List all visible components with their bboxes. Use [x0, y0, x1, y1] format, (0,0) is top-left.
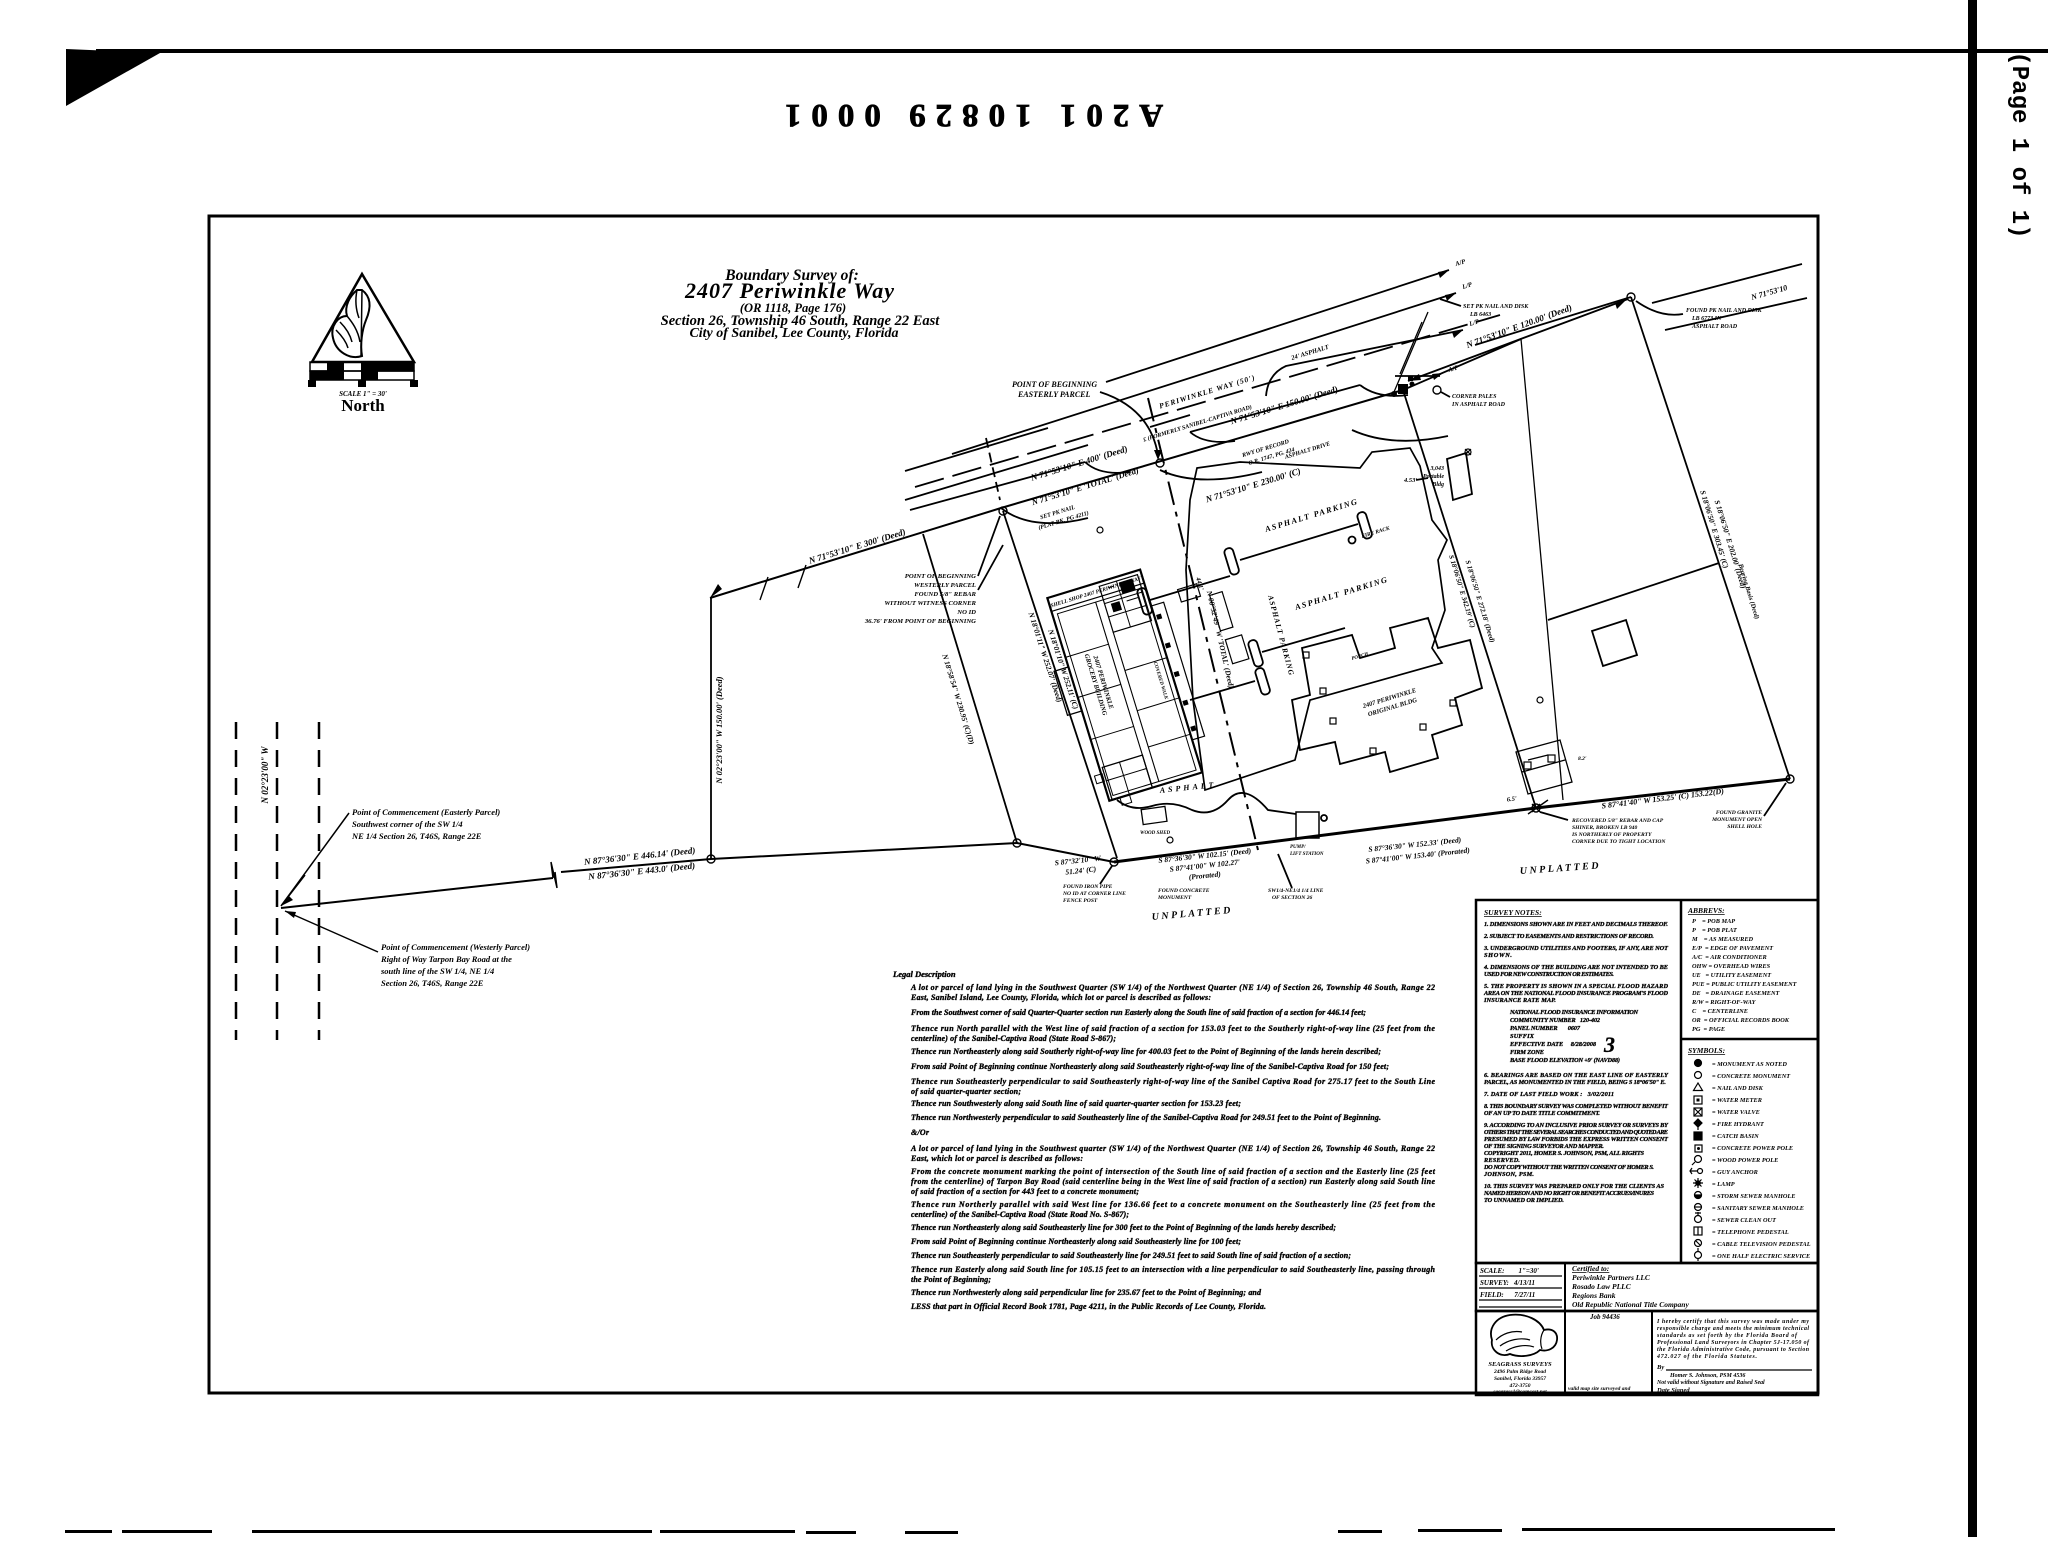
- svg-text:IN ASPHALT ROAD: IN ASPHALT ROAD: [1451, 402, 1506, 408]
- svg-text:7. DATE OF LAST FIELD WORK :: 7. DATE OF LAST FIELD WORK : 3/02/2011: [1484, 1091, 1614, 1098]
- svg-text:NATIONAL FLOOD INSURANCE INFOR: NATIONAL FLOOD INSURANCE INFORMATION: [1509, 1009, 1638, 1016]
- svg-text:COPYRIGHT 2011, HOMER S. JOHNS: COPYRIGHT 2011, HOMER S. JOHNSON, PSM, A…: [1484, 1150, 1644, 1157]
- svg-text:1. DIMENSIONS SHOWN ARE IN FEE: 1. DIMENSIONS SHOWN ARE IN FEET AND DECI…: [1484, 921, 1668, 928]
- svg-text:CORNER PALES: CORNER PALES: [1452, 394, 1497, 400]
- svg-text:OTHERS THAT THE SEVERAL SEARCH: OTHERS THAT THE SEVERAL SEARCHES CONDUCT…: [1484, 1129, 1668, 1136]
- svg-text:472.027 of the Florida Statute: 472.027 of the Florida Statutes.: [1656, 1354, 1757, 1360]
- svg-text:3,043: 3,043: [1430, 466, 1445, 472]
- svg-text:IS NORTHERLY OF PROPERTY: IS NORTHERLY OF PROPERTY: [1571, 832, 1652, 838]
- svg-text:UE = UTILITY EASEMENT: UE = UTILITY EASEMENT: [1692, 972, 1772, 979]
- svg-text:A lot or parcel of land lying: A lot or parcel of land lying in the Sou…: [910, 983, 1435, 992]
- svg-text:centerline) of the Sanibel-Cap: centerline) of the Sanibel-Captiva Road …: [911, 1210, 1129, 1219]
- svg-text:valid map site surveyed and: valid map site surveyed and: [1568, 1386, 1631, 1392]
- svg-text:Thence run Southeasterly perpe: Thence run Southeasterly perpendicular t…: [911, 1077, 1435, 1086]
- svg-text:Thence run Southeasterly perpe: Thence run Southeasterly perpendicular t…: [911, 1251, 1351, 1260]
- svg-text:LB 6463: LB 6463: [1469, 312, 1491, 318]
- svg-text:ASPHALT PARKING: ASPHALT PARKING: [1266, 593, 1297, 677]
- svg-text:POINT OF BEGINNING: POINT OF BEGINNING: [1012, 380, 1097, 389]
- svg-text:2. SUBJECT TO EASEMENTS AND RE: 2. SUBJECT TO EASEMENTS AND RESTRICTIONS…: [1483, 933, 1654, 940]
- svg-text:Bearing Basis (Deed): Bearing Basis (Deed): [1736, 562, 1760, 620]
- svg-text:Periwinkle Partners LLC: Periwinkle Partners LLC: [1572, 1273, 1651, 1282]
- svg-text:= LAMP: = LAMP: [1712, 1181, 1735, 1188]
- svg-text:LIFT STATION: LIFT STATION: [1289, 852, 1324, 857]
- svg-text:FIRM ZONE: FIRM ZONE: [1510, 1049, 1544, 1056]
- svg-text:Certified to:: Certified to:: [1572, 1264, 1609, 1273]
- svg-text:FOUND 5/8" REBAR: FOUND 5/8" REBAR: [914, 591, 976, 598]
- svg-text:FIRE RACK: FIRE RACK: [1361, 526, 1391, 540]
- svg-text:from the centerline) of Tarpon: from the centerline) of Tarpon Bay Road …: [911, 1177, 1435, 1186]
- svg-text:TO UNNAMED OR IMPLIED.: TO UNNAMED OR IMPLIED.: [1484, 1197, 1564, 1204]
- svg-text:SHELL HOLE: SHELL HOLE: [1727, 824, 1762, 830]
- svg-text:ABBREVS:: ABBREVS:: [1687, 906, 1725, 915]
- svg-text:Thence run Easterly along said: Thence run Easterly along said South lin…: [911, 1265, 1436, 1274]
- svg-text:OF SECTION 26: OF SECTION 26: [1272, 895, 1313, 901]
- svg-text:Point of Commencement (Westerl: Point of Commencement (Westerly Parcel): [381, 942, 530, 952]
- svg-text:POINT OF BEGINNING: POINT OF BEGINNING: [905, 573, 976, 580]
- svg-text:SYMBOLS:: SYMBOLS:: [1688, 1046, 1725, 1055]
- svg-text:M = AS MEASURED: M = AS MEASURED: [1691, 936, 1754, 943]
- svg-text:North: North: [341, 396, 385, 415]
- svg-text:ASPHALT ROAD: ASPHALT ROAD: [1691, 324, 1738, 330]
- svg-text:N 71°53'10" E 300' (Deed): N 71°53'10" E 300' (Deed): [807, 527, 907, 566]
- svg-text:10. THIS SURVEY WAS PREPARED O: 10. THIS SURVEY WAS PREPARED ONLY FOR TH…: [1484, 1183, 1664, 1190]
- svg-text:From said Point of Beginning c: From said Point of Beginning continue No…: [910, 1062, 1389, 1071]
- svg-text:Thence run North parallel with: Thence run North parallel with the West …: [911, 1024, 1435, 1033]
- svg-text:= GUY ANCHOR: = GUY ANCHOR: [1712, 1169, 1758, 1176]
- svg-text:3. UNDERGROUND UTILITIES AND F: 3. UNDERGROUND UTILITIES AND FOOTERS, IF…: [1483, 945, 1669, 952]
- svg-text:City of Sanibel, Lee County, F: City of Sanibel, Lee County, Florida: [689, 326, 898, 341]
- svg-text:From the concrete monument mar: From the concrete monument marking the p…: [910, 1167, 1436, 1176]
- svg-text:Not valid without Signature an: Not valid without Signature and Raised S…: [1656, 1380, 1765, 1386]
- svg-text:FOUND PK NAIL AND DISK: FOUND PK NAIL AND DISK: [1686, 308, 1763, 314]
- svg-text:SCALE: 1"=30': SCALE: 1"=30': [1480, 1267, 1539, 1275]
- svg-text:WESTERLY PARCEL: WESTERLY PARCEL: [914, 582, 976, 589]
- svg-text:9. ACCORDING TO AN INCLUSIVE P: 9. ACCORDING TO AN INCLUSIVE PRIOR SURVE…: [1484, 1122, 1669, 1129]
- svg-text:SHOWN.: SHOWN.: [1484, 952, 1512, 959]
- svg-text:DO NOT COPY WITHOUT THE WRITTE: DO NOT COPY WITHOUT THE WRITTEN CONSENT …: [1483, 1164, 1654, 1171]
- svg-text:4.53': 4.53': [1403, 477, 1417, 484]
- svg-text:P = POB PLAT: P = POB PLAT: [1692, 927, 1738, 934]
- svg-text:Professional Land Surveyors in: Professional Land Surveyors in Chapter 5…: [1657, 1340, 1810, 1346]
- svg-text:Job 94436: Job 94436: [1589, 1313, 1620, 1321]
- svg-text:Point of Commencement (Easterl: Point of Commencement (Easterly Parcel): [352, 807, 500, 817]
- svg-text:= STORM SEWER MANHOLE: = STORM SEWER MANHOLE: [1712, 1193, 1795, 1200]
- svg-text:JOHNSON, PSM.: JOHNSON, PSM.: [1483, 1171, 1534, 1178]
- svg-text:6.5': 6.5': [1507, 795, 1518, 803]
- svg-text:OF THE SIGNING SURVEYOR AND MA: OF THE SIGNING SURVEYOR AND MAPPER.: [1484, 1143, 1604, 1150]
- svg-text:RESERVED.: RESERVED.: [1483, 1157, 1520, 1164]
- svg-text:A/C = AIR CONDITIONER: A/C = AIR CONDITIONER: [1691, 954, 1767, 961]
- svg-text:FIELD: 7/27/11: FIELD: 7/27/11: [1480, 1291, 1535, 1299]
- svg-text:FENCE POST: FENCE POST: [1063, 898, 1098, 904]
- svg-text:36.76' FROM POINT OF BEGINNING: 36.76' FROM POINT OF BEGINNING: [864, 618, 976, 625]
- svg-text:From said Point of Beginning c: From said Point of Beginning continue No…: [910, 1237, 1241, 1246]
- svg-text:INSURANCE RATE MAP.: INSURANCE RATE MAP.: [1483, 997, 1556, 1004]
- svg-text:EFFECTIVE DATE 8/28/2008: EFFECTIVE DATE 8/28/2008: [1509, 1041, 1597, 1048]
- svg-text:N 00°52'49" W 'TOTAL' (Deed): N 00°52'49" W 'TOTAL' (Deed): [1205, 589, 1237, 690]
- svg-text:COVERED WALK: COVERED WALK: [1152, 661, 1168, 700]
- svg-text:SHINER, BROKEN LB 940: SHINER, BROKEN LB 940: [1572, 825, 1637, 831]
- svg-text:= SANITARY SEWER MANHOLE: = SANITARY SEWER MANHOLE: [1712, 1205, 1804, 1212]
- svg-text:By: By: [1656, 1364, 1664, 1371]
- svg-text:NE 1/4 Section 26, T46S, Range: NE 1/4 Section 26, T46S, Range 22E: [351, 831, 482, 841]
- svg-text:&/Or: &/Or: [911, 1128, 930, 1137]
- svg-text:24' ASPHALT: 24' ASPHALT: [1290, 344, 1331, 363]
- svg-text:Thence run Northwesterly along: Thence run Northwesterly along said perp…: [911, 1288, 1262, 1297]
- svg-text:PRESUMED BY LAW FORBIDS THE EX: PRESUMED BY LAW FORBIDS THE EXPRESS WRIT…: [1484, 1136, 1669, 1143]
- svg-text:FOUND GRANITE: FOUND GRANITE: [1716, 810, 1762, 816]
- svg-text:Thence run Northeasterly along: Thence run Northeasterly along said Sout…: [911, 1223, 1336, 1232]
- svg-text:8. THIS BOUNDARY SURVEY WAS CO: 8. THIS BOUNDARY SURVEY WAS COMPLETED WI…: [1484, 1103, 1669, 1110]
- svg-text:N 71°53'10" E 150.00' (Deed): N 71°53'10" E 150.00' (Deed): [1228, 384, 1339, 427]
- svg-text:LESS that part in Official Rec: LESS that part in Official Record Book 1…: [910, 1302, 1266, 1311]
- svg-text:SET PK NAIL AND DISK: SET PK NAIL AND DISK: [1463, 304, 1529, 310]
- svg-text:= ONE HALF ELECTRIC SERVICE: = ONE HALF ELECTRIC SERVICE: [1712, 1253, 1810, 1260]
- svg-text:NO ID: NO ID: [956, 609, 976, 616]
- svg-text:standards as set forth by the: standards as set forth by the Florida Bo…: [1656, 1333, 1798, 1339]
- svg-text:6. BEARINGS ARE BASED ON THE E: 6. BEARINGS ARE BASED ON THE EAST LINE O…: [1484, 1072, 1669, 1079]
- svg-text:= TELEPHONE PEDESTAL: = TELEPHONE PEDESTAL: [1712, 1229, 1789, 1236]
- svg-text:OF AN UP TO DATE TITLE COMMITM: OF AN UP TO DATE TITLE COMMITMENT.: [1484, 1110, 1600, 1117]
- svg-text:AREA ON THE NATIONAL FLOOD INS: AREA ON THE NATIONAL FLOOD INSURANCE PRO…: [1483, 990, 1668, 997]
- svg-text:PUE = PUBLIC UTILITY EASEMENT: PUE = PUBLIC UTILITY EASEMENT: [1692, 981, 1798, 988]
- svg-text:From the Southwest corner of s: From the Southwest corner of said Quarte…: [910, 1008, 1366, 1017]
- svg-text:CORNER DUE TO TIGHT LOCATION: CORNER DUE TO TIGHT LOCATION: [1572, 839, 1666, 845]
- svg-text:= WATER METER: = WATER METER: [1712, 1097, 1762, 1104]
- svg-text:Section 26, T46S, Range 22E: Section 26, T46S, Range 22E: [381, 978, 484, 988]
- svg-text:RECOVERED 5/8" REBAR AND CAP: RECOVERED 5/8" REBAR AND CAP: [1571, 818, 1664, 824]
- svg-text:Homer S. Johnson, PSM 4536: Homer S. Johnson, PSM 4536: [1669, 1373, 1745, 1379]
- svg-text:S 87°41'40" W 153.25' (C) 153.: S 87°41'40" W 153.25' (C) 153.22(D): [1601, 787, 1725, 811]
- svg-text:= FIRE HYDRANT: = FIRE HYDRANT: [1712, 1121, 1765, 1128]
- svg-text:of said quarter-quarter sectio: of said quarter-quarter section;: [911, 1087, 1021, 1096]
- svg-text:USED FOR NEW CONSTRUCTION OR E: USED FOR NEW CONSTRUCTION OR ESTIMATES.: [1484, 971, 1614, 978]
- svg-text:A/P: A/P: [1454, 258, 1468, 268]
- svg-text:FOUND CONCRETE: FOUND CONCRETE: [1158, 888, 1210, 894]
- svg-text:MONUMENT: MONUMENT: [1157, 895, 1192, 901]
- svg-text:N 71°53'10: N 71°53'10: [1749, 283, 1788, 302]
- svg-text:Thence run Northeasterly along: Thence run Northeasterly along said Sout…: [911, 1047, 1381, 1056]
- svg-text:ASPHALT PARKING: ASPHALT PARKING: [1293, 575, 1389, 612]
- svg-text:Regions Bank: Regions Bank: [1571, 1291, 1616, 1300]
- svg-text:East, which lot or parcel is d: East, which lot or parcel is described a…: [910, 1154, 1083, 1163]
- svg-text:NAMED HEREON AND NO RIGHT OR B: NAMED HEREON AND NO RIGHT OR BENEFIT ACC…: [1483, 1190, 1654, 1197]
- svg-text:the Point of Beginning;: the Point of Beginning;: [911, 1275, 991, 1284]
- svg-text:= SEWER CLEAN OUT: = SEWER CLEAN OUT: [1712, 1217, 1777, 1224]
- svg-text:Old Republic National Title Co: Old Republic National Title Company: [1572, 1300, 1689, 1309]
- svg-text:seagrass1@comcast.net: seagrass1@comcast.net: [1492, 1389, 1547, 1395]
- svg-text:N 02°23'00" W: N 02°23'00" W: [260, 746, 270, 805]
- svg-text:UNPLATTED: UNPLATTED: [1151, 905, 1233, 923]
- svg-text:Sanibel, Florida 33957: Sanibel, Florida 33957: [1494, 1376, 1546, 1382]
- svg-text:SUFFIX: SUFFIX: [1510, 1033, 1535, 1040]
- svg-text:BASE FLOOD ELEVATION +9' (NAVD: BASE FLOOD ELEVATION +9' (NAVD88): [1509, 1057, 1620, 1064]
- svg-text:Legal Description: Legal Description: [892, 969, 956, 979]
- svg-text:2496 Palm Ridge Road: 2496 Palm Ridge Road: [1493, 1369, 1546, 1375]
- svg-text:SURVEY: 4/13/11: SURVEY: 4/13/11: [1480, 1279, 1535, 1287]
- svg-text:Bldg: Bldg: [1431, 482, 1444, 488]
- svg-text:8.2': 8.2': [1578, 756, 1587, 762]
- svg-text:Thence run Northerly parallel: Thence run Northerly parallel with said …: [911, 1200, 1435, 1209]
- svg-text:PANEL NUMBER 0607: PANEL NUMBER 0607: [1510, 1025, 1581, 1032]
- svg-text:UNPLATTED: UNPLATTED: [1519, 860, 1601, 877]
- svg-text:PUMP/: PUMP/: [1290, 845, 1306, 850]
- svg-text:FOUND IRON PIPE: FOUND IRON PIPE: [1063, 884, 1113, 890]
- svg-text:N 71°53'10" E 230.00' (C): N 71°53'10" E 230.00' (C): [1203, 466, 1301, 505]
- svg-text:EASTERLY PARCEL: EASTERLY PARCEL: [1017, 390, 1090, 399]
- svg-text:= NAIL AND DISK: = NAIL AND DISK: [1712, 1085, 1764, 1092]
- svg-text:L/P: L/P: [1468, 318, 1481, 328]
- svg-text:(Page 1 of 1): (Page 1 of 1): [2005, 51, 2032, 238]
- svg-text:Southwest corner of the SW 1/4: Southwest corner of the SW 1/4: [352, 819, 463, 829]
- svg-text:WITHOUT WITNESS CORNER: WITHOUT WITNESS CORNER: [884, 600, 976, 607]
- svg-text:SW1/4-NE1/4 1/4 LINE: SW1/4-NE1/4 1/4 LINE: [1268, 888, 1324, 894]
- svg-text:NO ID AT CORNER LINE: NO ID AT CORNER LINE: [1062, 891, 1126, 897]
- svg-text:N 18°58'54" W 230.95' (C)(D): N 18°58'54" W 230.95' (C)(D): [940, 652, 977, 746]
- svg-text:Thence run Northwesterly perpe: Thence run Northwesterly perpendicular t…: [911, 1113, 1381, 1122]
- svg-text:COMMUNITY NUMBER 120-402: COMMUNITY NUMBER 120-402: [1510, 1017, 1600, 1024]
- svg-text:Thence run Southwesterly along: Thence run Southwesterly along said Sout…: [911, 1099, 1241, 1108]
- svg-text:A201 10829 0001: A201 10829 0001: [775, 97, 1163, 133]
- svg-text:OHW = OVERHEAD WIRES: OHW = OVERHEAD WIRES: [1692, 963, 1771, 970]
- svg-text:WOOD SHED: WOOD SHED: [1140, 831, 1171, 836]
- svg-text:51.24' (C): 51.24' (C): [1065, 864, 1097, 876]
- svg-text:= WOOD POWER POLE: = WOOD POWER POLE: [1712, 1157, 1778, 1164]
- svg-text:4. DIMENSIONS OF THE BUILDING: 4. DIMENSIONS OF THE BUILDING ARE NOT IN…: [1483, 964, 1668, 971]
- svg-text:LB 6773 IN: LB 6773 IN: [1691, 316, 1722, 322]
- svg-text:Right of Way Tarpon Bay Road a: Right of Way Tarpon Bay Road at the: [380, 954, 512, 964]
- svg-text:N 02°23'00" W 150.00' (Deed): N 02°23'00" W 150.00' (Deed): [714, 676, 724, 784]
- svg-text:Rosado Law PLLC: Rosado Law PLLC: [1571, 1282, 1632, 1291]
- svg-text:I hereby certify that this sur: I hereby certify that this survey was ma…: [1656, 1319, 1809, 1325]
- svg-text:responsible charge and meets t: responsible charge and meets the minimum…: [1657, 1326, 1809, 1332]
- svg-text:PORCH: PORCH: [1351, 652, 1370, 662]
- svg-text:of said fraction of a section: of said fraction of a section for 443 fe…: [911, 1187, 1139, 1196]
- svg-text:centerline) of the Sanibel-Cap: centerline) of the Sanibel-Captiva Road …: [911, 1034, 1116, 1043]
- svg-text:5. THE PROPERTY IS SHOWN IN A: 5. THE PROPERTY IS SHOWN IN A SPECIAL FL…: [1484, 983, 1668, 990]
- svg-text:OR = OFFICIAL RECORDS BOOK: OR = OFFICIAL RECORDS BOOK: [1692, 1017, 1790, 1024]
- svg-text:C = CENTERLINE: C = CENTERLINE: [1692, 1008, 1748, 1015]
- svg-text:= CONCRETE MONUMENT: = CONCRETE MONUMENT: [1712, 1073, 1791, 1080]
- svg-text:R/W = RIGHT-OF-WAY: R/W = RIGHT-OF-WAY: [1691, 999, 1757, 1006]
- svg-text:= WATER VALVE: = WATER VALVE: [1712, 1109, 1760, 1116]
- svg-text:PARCEL, AS MONUMENTED IN THE F: PARCEL, AS MONUMENTED IN THE FIELD, BEIN…: [1484, 1079, 1666, 1086]
- svg-text:Date Signed: Date Signed: [1656, 1387, 1690, 1394]
- svg-text:SEAGRASS SURVEYS: SEAGRASS SURVEYS: [1488, 1361, 1552, 1368]
- svg-text:A lot or parcel of land lying: A lot or parcel of land lying in the Sou…: [910, 1144, 1435, 1153]
- svg-text:L/P: L/P: [1461, 281, 1474, 291]
- svg-text:DE = DRAINAGE EASEMENT: DE = DRAINAGE EASEMENT: [1691, 990, 1781, 997]
- svg-text:3: 3: [1603, 1032, 1615, 1057]
- svg-text:E/P = EDGE OF PAVEMENT: E/P = EDGE OF PAVEMENT: [1691, 945, 1774, 952]
- svg-text:= MONUMENT AS NOTED: = MONUMENT AS NOTED: [1712, 1061, 1787, 1068]
- svg-text:= CATCH BASIN: = CATCH BASIN: [1712, 1133, 1759, 1140]
- svg-text:P = POB MAP: P = POB MAP: [1692, 918, 1735, 925]
- svg-text:PG = PAGE: PG = PAGE: [1692, 1026, 1725, 1033]
- svg-text:2407 Periwinkle Way: 2407 Periwinkle Way: [684, 278, 895, 303]
- svg-text:the Florida Administrative Cod: the Florida Administrative Code, pursuan…: [1657, 1347, 1809, 1353]
- svg-text:= CONCRETE POWER POLE: = CONCRETE POWER POLE: [1712, 1145, 1793, 1152]
- svg-text:SURVEY NOTES:: SURVEY NOTES:: [1484, 908, 1542, 917]
- svg-text:MONUMENT OPEN: MONUMENT OPEN: [1711, 817, 1763, 823]
- svg-text:44.1': 44.1': [1194, 576, 1205, 592]
- svg-text:south line of the SW 1/4, NE 1: south line of the SW 1/4, NE 1/4: [380, 966, 494, 976]
- svg-text:East, Sanibel Island, Lee Coun: East, Sanibel Island, Lee County, Florid…: [910, 993, 1211, 1002]
- svg-text:= CABLE TELEVISION PEDESTAL: = CABLE TELEVISION PEDESTAL: [1712, 1241, 1811, 1248]
